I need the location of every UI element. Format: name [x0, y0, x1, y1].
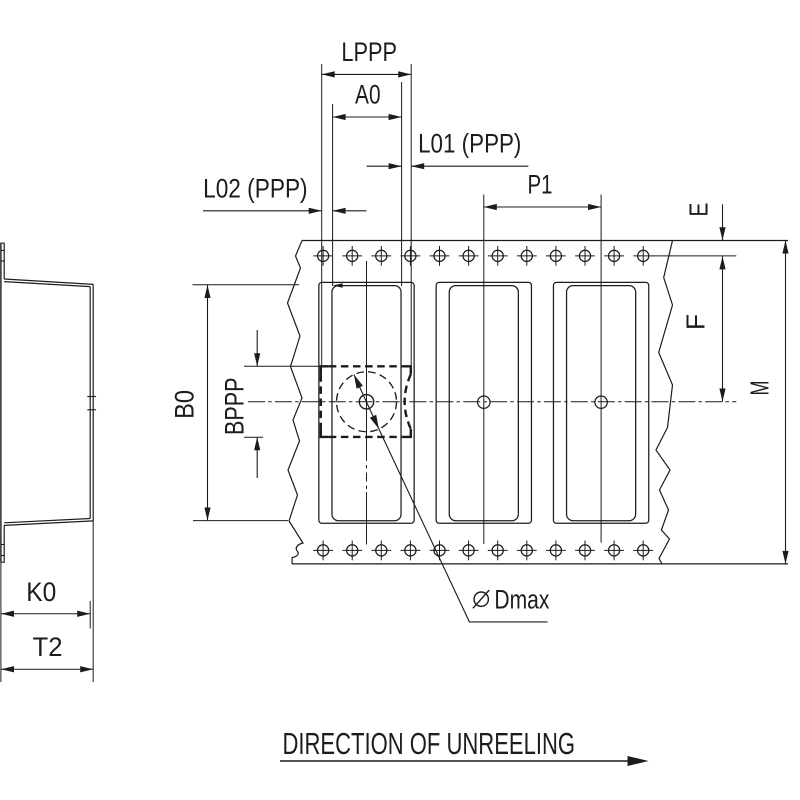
- svg-text:L02 (PPP): L02 (PPP): [203, 173, 308, 203]
- svg-text:LPPP: LPPP: [341, 37, 397, 67]
- svg-text:A0: A0: [355, 80, 381, 110]
- svg-text:BPPP: BPPP: [219, 378, 249, 436]
- svg-text:Dmax: Dmax: [494, 584, 549, 614]
- svg-text:M: M: [745, 381, 775, 396]
- svg-text:L01 (PPP): L01 (PPP): [418, 129, 521, 159]
- svg-text:F: F: [681, 314, 711, 330]
- svg-text:T2: T2: [33, 632, 63, 662]
- svg-text:P1: P1: [528, 170, 553, 200]
- svg-text:DIRECTION OF UNREELING: DIRECTION OF UNREELING: [283, 726, 576, 761]
- svg-text:K0: K0: [26, 577, 56, 607]
- svg-text:E: E: [684, 203, 714, 217]
- svg-text:B0: B0: [170, 390, 200, 419]
